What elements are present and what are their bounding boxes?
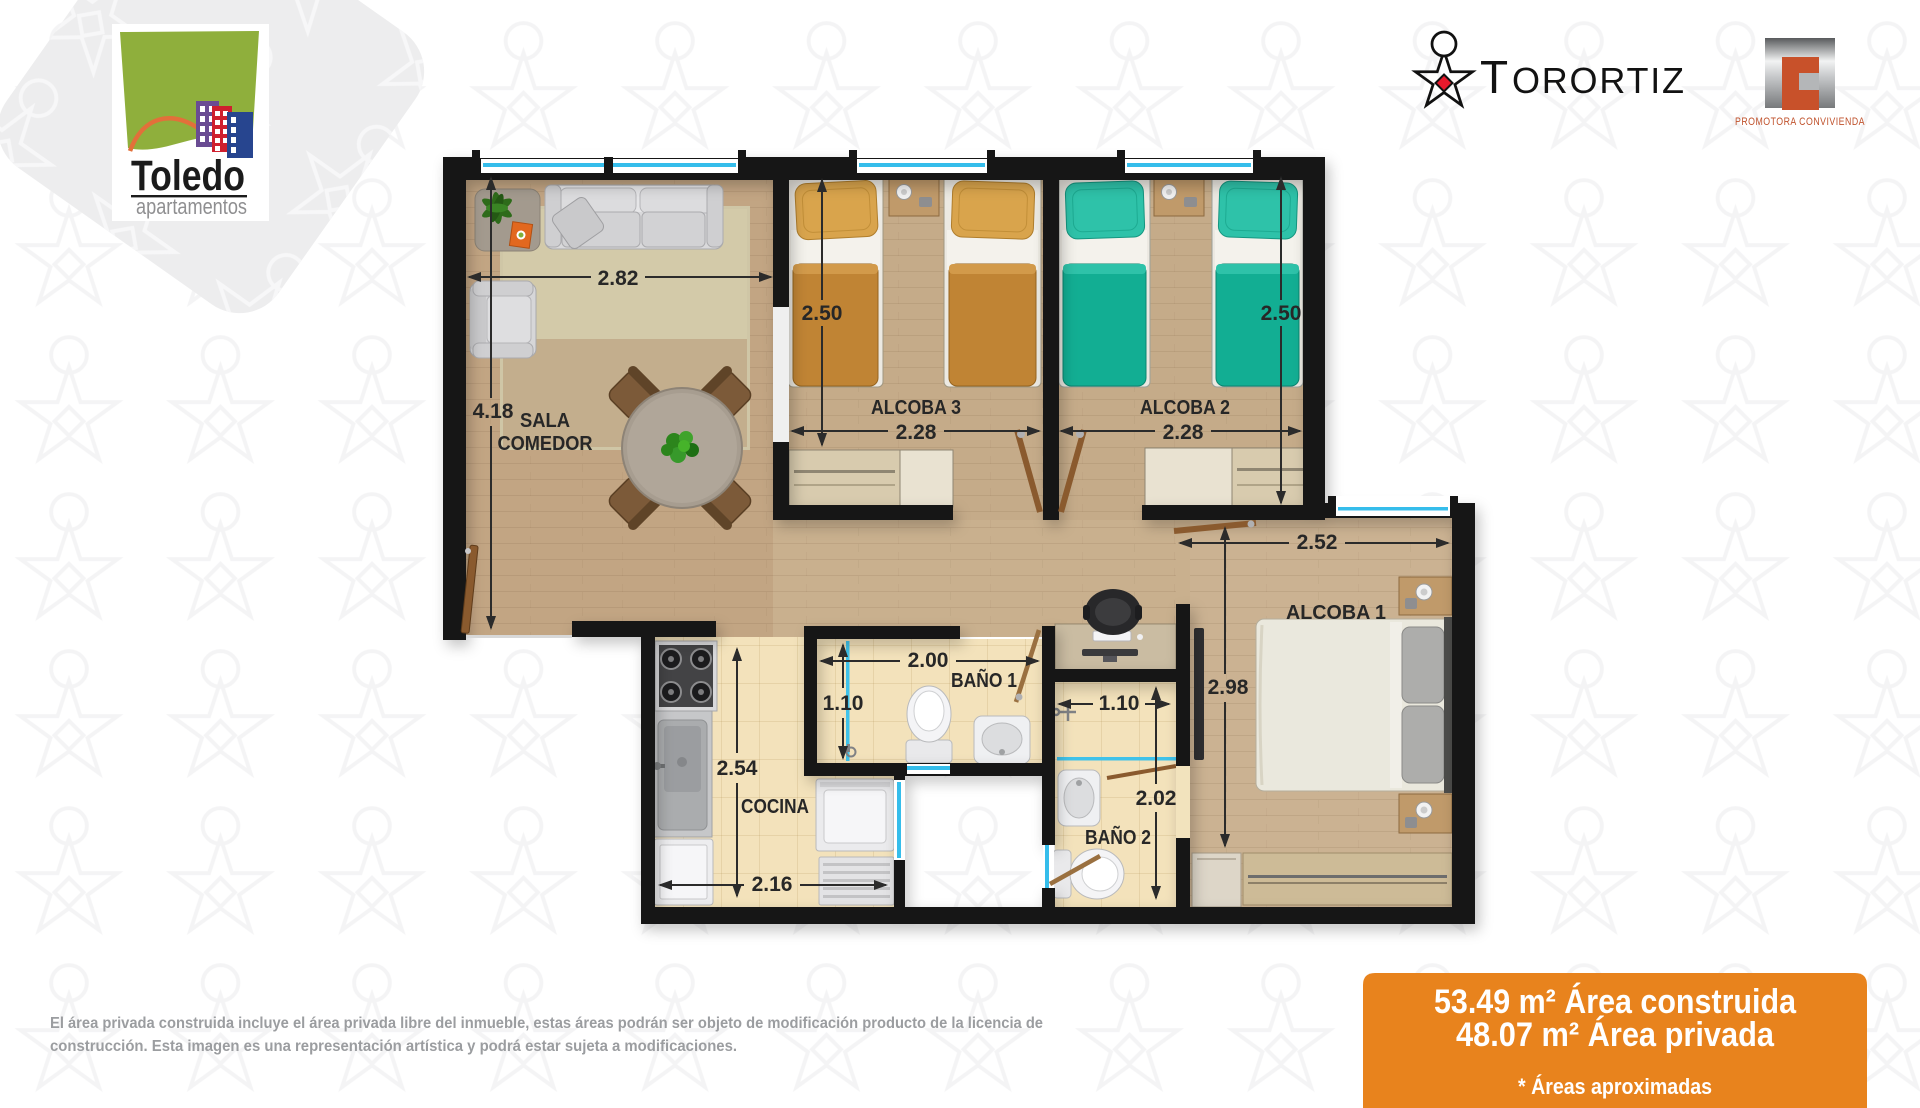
svg-text:1.10: 1.10 (1099, 692, 1140, 715)
svg-text:construcción. Esta imagen es u: construcción. Esta imagen es una represe… (50, 1038, 737, 1055)
svg-text:apartamentos: apartamentos (136, 194, 247, 219)
svg-text:ALCOBA 2: ALCOBA 2 (1140, 397, 1230, 419)
svg-text:BAÑO 1: BAÑO 1 (951, 669, 1017, 692)
svg-text:COCINA: COCINA (741, 796, 809, 818)
svg-text:ALCOBA 1: ALCOBA 1 (1286, 602, 1386, 624)
svg-text:El área privada construida inc: El área privada construida incluye el ár… (50, 1015, 1043, 1032)
svg-text:* Áreas aproximadas: * Áreas aproximadas (1518, 1074, 1712, 1099)
svg-text:2.28: 2.28 (896, 421, 937, 444)
svg-text:2.50: 2.50 (802, 302, 843, 325)
svg-text:2.02: 2.02 (1136, 787, 1177, 810)
svg-text:SALA: SALA (520, 410, 570, 432)
svg-text:2.54: 2.54 (717, 757, 758, 780)
svg-text:ORORTIZ: ORORTIZ (1512, 60, 1687, 101)
svg-text:2.00: 2.00 (908, 649, 949, 672)
svg-text:2.52: 2.52 (1297, 531, 1338, 554)
svg-text:2.98: 2.98 (1208, 676, 1249, 699)
svg-text:4.18: 4.18 (473, 400, 514, 423)
svg-text:COMEDOR: COMEDOR (498, 433, 593, 455)
svg-text:Toledo: Toledo (131, 152, 245, 200)
svg-text:ALCOBA 3: ALCOBA 3 (871, 397, 961, 419)
svg-text:2.16: 2.16 (752, 873, 793, 896)
svg-text:2.28: 2.28 (1163, 421, 1204, 444)
svg-text:PROMOTORA CONVIVIENDA: PROMOTORA CONVIVIENDA (1735, 116, 1865, 128)
svg-text:1.10: 1.10 (823, 692, 864, 715)
svg-text:2.50: 2.50 (1261, 302, 1302, 325)
svg-text:T: T (1480, 51, 1508, 103)
svg-text:2.82: 2.82 (598, 267, 639, 290)
svg-text:48.07 m² Área privada: 48.07 m² Área privada (1456, 1016, 1775, 1054)
svg-text:BAÑO 2: BAÑO 2 (1085, 826, 1151, 849)
